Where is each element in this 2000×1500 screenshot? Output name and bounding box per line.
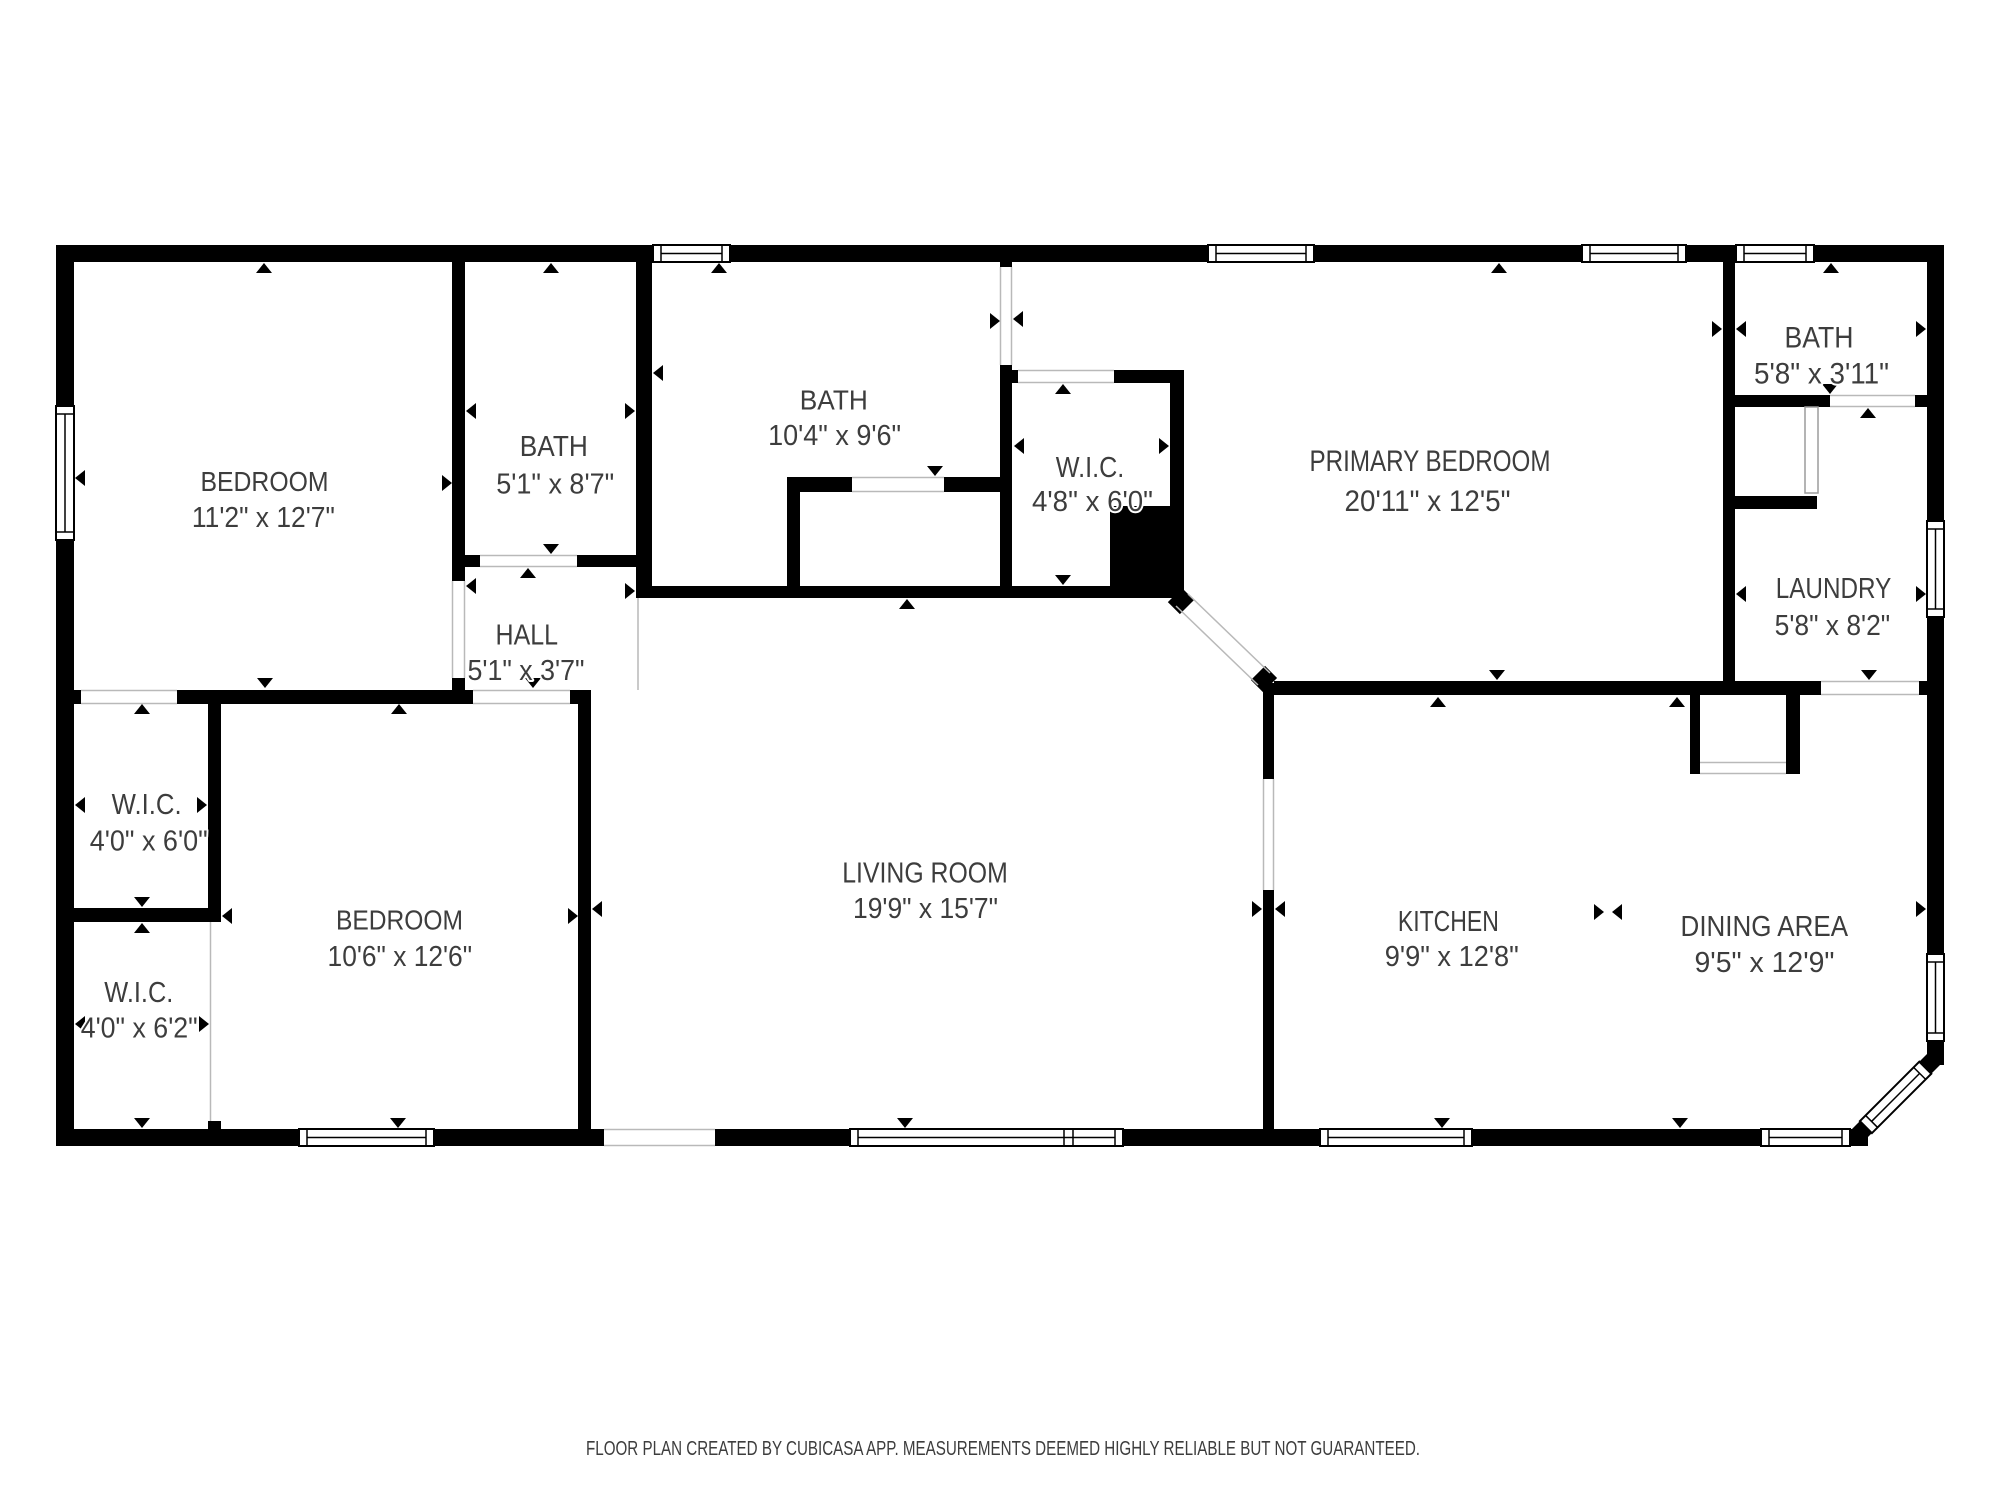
svg-text:PRIMARY BEDROOM: PRIMARY BEDROOM [1310,445,1551,478]
svg-text:BATH: BATH [1785,322,1854,355]
svg-text:BATH: BATH [520,431,588,463]
svg-text:BEDROOM: BEDROOM [336,905,463,936]
svg-text:DINING AREA: DINING AREA [1681,911,1849,943]
svg-text:5'8" x 8'2": 5'8" x 8'2" [1775,610,1891,642]
svg-text:5'1" x 8'7": 5'1" x 8'7" [496,469,614,501]
svg-text:W.I.C.: W.I.C. [104,977,173,1009]
svg-text:LAUNDRY: LAUNDRY [1776,573,1892,605]
svg-text:W.I.C.: W.I.C. [112,789,182,821]
svg-text:BEDROOM: BEDROOM [201,466,329,497]
svg-text:11'2" x 12'7": 11'2" x 12'7" [192,502,335,534]
svg-text:4'0" x 6'0": 4'0" x 6'0" [90,826,208,858]
svg-text:10'4" x 9'6": 10'4" x 9'6" [768,420,901,452]
svg-text:KITCHEN: KITCHEN [1398,906,1499,938]
svg-text:9'5" x 12'9": 9'5" x 12'9" [1695,947,1835,979]
svg-text:5'8" x 3'11": 5'8" x 3'11" [1754,357,1889,390]
svg-text:W.I.C.: W.I.C. [1056,452,1125,484]
svg-text:5'1" x 3'7": 5'1" x 3'7" [468,655,585,687]
svg-text:HALL: HALL [496,620,559,652]
svg-text:20'11" x 12'5": 20'11" x 12'5" [1345,485,1511,518]
svg-text:10'6" x 12'6": 10'6" x 12'6" [328,941,473,973]
svg-text:4'8" x 6'0": 4'8" x 6'0" [1032,486,1153,518]
svg-text:FLOOR PLAN CREATED BY CUBICASA: FLOOR PLAN CREATED BY CUBICASA APP. MEAS… [586,1438,1420,1460]
svg-text:BATH: BATH [800,385,868,416]
svg-text:LIVING ROOM: LIVING ROOM [842,858,1008,890]
svg-text:4'0" x 6'2": 4'0" x 6'2" [81,1013,198,1045]
svg-text:19'9" x 15'7": 19'9" x 15'7" [853,893,998,925]
svg-text:9'9" x 12'8": 9'9" x 12'8" [1385,941,1519,973]
